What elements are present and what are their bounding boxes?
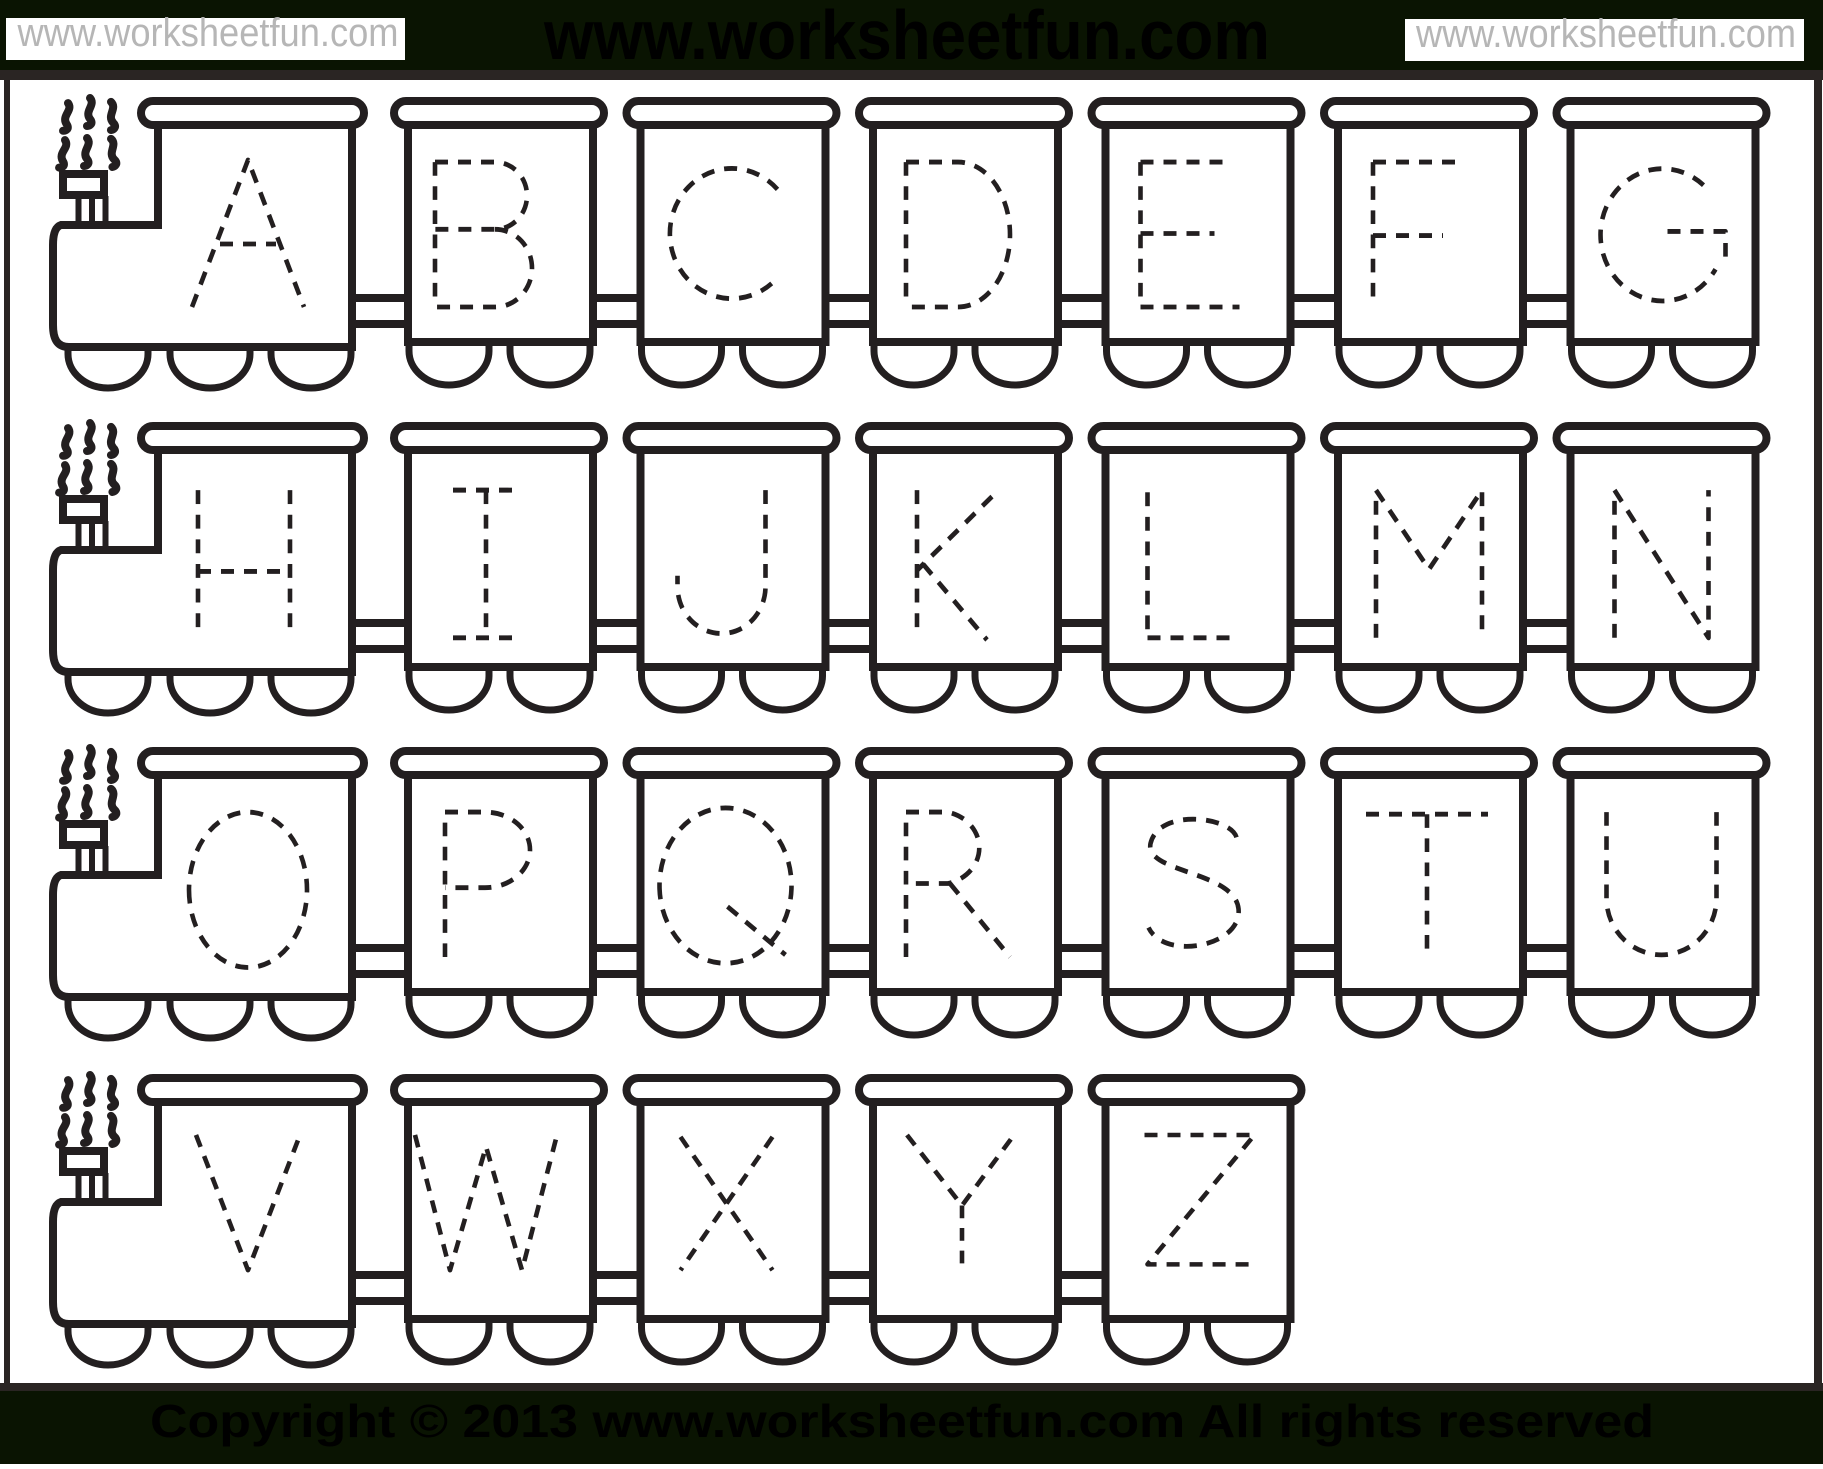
svg-text:Copyright © 2013 www.worksheet: Copyright © 2013 www.worksheetfun.com Al… [150, 1395, 1654, 1447]
svg-text:www.worksheetfun.com: www.worksheetfun.com [543, 0, 1270, 74]
svg-text:www.worksheetfun.com: www.worksheetfun.com [17, 11, 399, 55]
svg-text:www.worksheetfun.com: www.worksheetfun.com [1415, 12, 1796, 56]
